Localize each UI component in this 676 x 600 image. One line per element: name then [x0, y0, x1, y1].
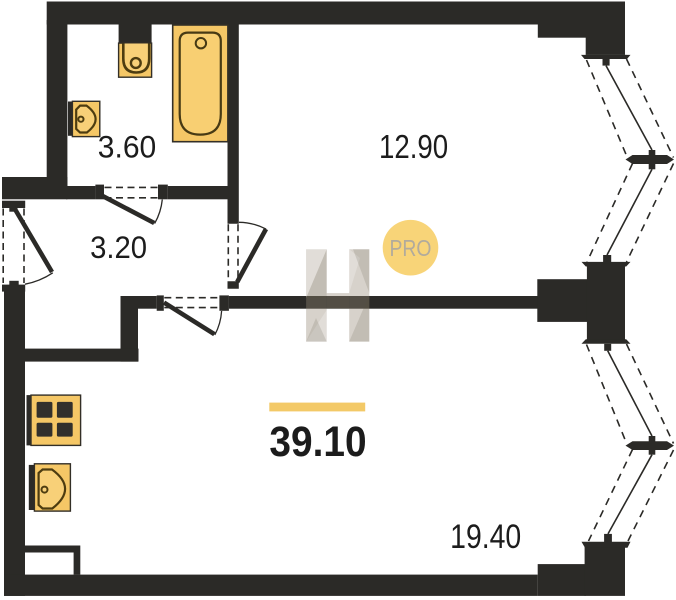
- svg-text:39.10: 39.10: [269, 419, 366, 466]
- svg-text:3.20: 3.20: [90, 229, 147, 265]
- svg-text:12.90: 12.90: [379, 128, 448, 165]
- svg-text:3.60: 3.60: [98, 129, 157, 165]
- svg-text:19.40: 19.40: [450, 518, 521, 556]
- svg-text:PRO: PRO: [390, 235, 432, 261]
